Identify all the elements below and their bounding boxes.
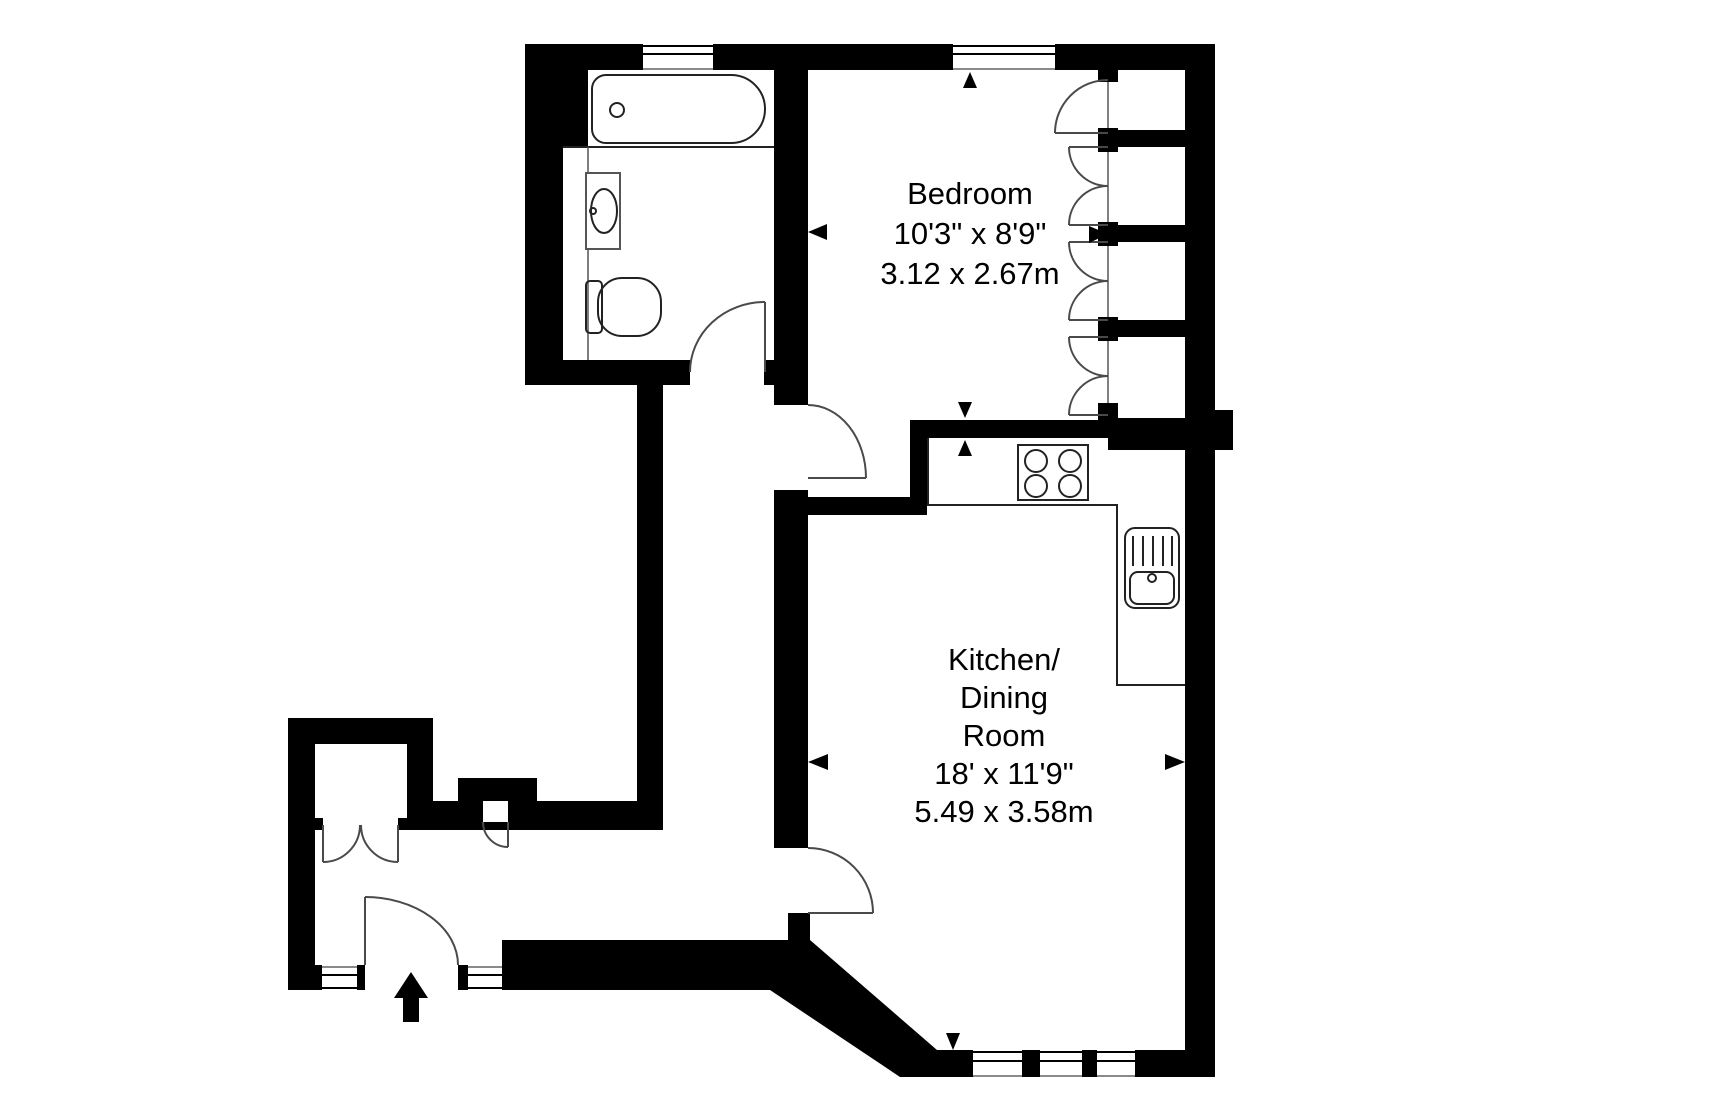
wall-kitchen-top-band xyxy=(774,497,927,515)
kitchen-label-line2: Dining xyxy=(960,680,1048,715)
wall-cupboard-block xyxy=(458,778,537,801)
wall-kitchen-bottom-left xyxy=(900,1050,973,1077)
arrow-up-bedroom-top-icon xyxy=(963,72,977,88)
wall-right-protrusion xyxy=(1215,410,1233,450)
wall-hall-bottom-band xyxy=(502,940,810,990)
hall-closet-doors xyxy=(323,825,398,862)
wall-kitchen-door-stub xyxy=(788,913,810,943)
floorplan-canvas: Bedroom 10'3" x 8'9" 3.12 x 2.67m Kitche… xyxy=(0,0,1710,1110)
floorplan-svg: Bedroom 10'3" x 8'9" 3.12 x 2.67m Kitche… xyxy=(0,0,1710,1110)
bedroom-door xyxy=(808,405,866,478)
wall-divider-mid xyxy=(774,490,808,848)
kitchen-label-line1: Kitchen/ xyxy=(948,642,1060,677)
wall-kitchen-bottom-mullion2 xyxy=(1082,1050,1097,1077)
wardrobe-door-2 xyxy=(1069,147,1108,225)
hob-burner-1 xyxy=(1025,450,1047,472)
wall-wardrobe-bar1 xyxy=(1118,130,1185,147)
window-kitchen-1 xyxy=(973,1051,1022,1076)
wall-wardrobe-stub4 xyxy=(1098,403,1118,433)
bedroom-label: Bedroom xyxy=(907,176,1033,211)
entrance-arrow-icon xyxy=(394,972,428,1022)
kitchen-door xyxy=(808,848,873,913)
wall-bathroom-inner-block xyxy=(563,70,588,147)
wall-right xyxy=(1185,44,1215,1077)
wall-divider-top xyxy=(774,44,808,405)
wall-kitchen-bottom-mullion1 xyxy=(1022,1050,1040,1077)
wall-closet-jamb-left xyxy=(315,818,323,830)
hob-burner-4 xyxy=(1059,475,1081,497)
wall-hall-bottom-jamb1 xyxy=(357,965,365,990)
window-kitchen-2 xyxy=(1040,1051,1082,1076)
wall-wardrobe-bar3 xyxy=(1118,320,1185,337)
window-kitchen-3 xyxy=(1097,1051,1135,1076)
sink-tap-icon xyxy=(1148,574,1156,582)
arrow-left-bedroom-icon xyxy=(808,224,827,240)
wall-wardrobe-bottom xyxy=(1108,418,1185,450)
sink-basin xyxy=(1130,572,1174,604)
kitchen-label-line3: Room xyxy=(963,718,1046,753)
window-bedroom-top xyxy=(953,45,1055,69)
hob-burner-2 xyxy=(1059,450,1081,472)
window-hall-1 xyxy=(322,966,357,989)
bath-tub xyxy=(592,75,765,143)
wall-hall-bottom-left xyxy=(288,965,322,990)
window-hall-2 xyxy=(468,966,502,989)
window-bathroom-top xyxy=(643,45,713,69)
arrow-left-kitchen-icon xyxy=(808,754,828,770)
bathroom-door xyxy=(690,302,765,372)
walls xyxy=(288,44,1233,1077)
wall-hall-bottom-jamb2 xyxy=(458,965,468,990)
toilet-bowl xyxy=(598,278,661,336)
kitchen-dim-imperial: 18' x 11'9" xyxy=(934,756,1073,791)
bedroom-dim-metric: 3.12 x 2.67m xyxy=(880,256,1059,291)
kitchen-dim-metric: 5.49 x 3.58m xyxy=(914,794,1093,829)
wall-top-mid xyxy=(713,44,953,70)
doors xyxy=(323,80,1108,965)
wall-closet-right xyxy=(407,718,433,830)
wall-hall-band xyxy=(407,801,663,830)
arrow-up-kitchen-top-icon xyxy=(958,440,972,456)
entrance-door xyxy=(365,897,458,965)
wall-bathroom-bottom xyxy=(525,360,690,385)
arrow-right-kitchen-icon xyxy=(1165,754,1185,770)
arrow-down-kitchen-bottom-icon xyxy=(946,1033,960,1050)
wall-hall-left xyxy=(288,718,315,990)
wardrobe-door-3 xyxy=(1069,242,1108,320)
arrow-down-bedroom-bottom-icon xyxy=(958,402,972,418)
wall-closet-jamb-right xyxy=(398,818,407,830)
wall-bathroom-left xyxy=(525,44,563,385)
wall-corridor-left xyxy=(637,385,663,830)
bedroom-dim-imperial: 10'3" x 8'9" xyxy=(894,216,1047,251)
wall-wardrobe-stub1 xyxy=(1098,128,1118,152)
kitchen-fixtures xyxy=(1018,445,1179,608)
hob-burner-3 xyxy=(1025,475,1047,497)
wardrobe-door-1 xyxy=(1055,80,1108,133)
wall-wardrobe-bar2 xyxy=(1118,225,1185,242)
cupboard-recess xyxy=(483,801,508,822)
bathroom-fixtures xyxy=(586,75,765,336)
